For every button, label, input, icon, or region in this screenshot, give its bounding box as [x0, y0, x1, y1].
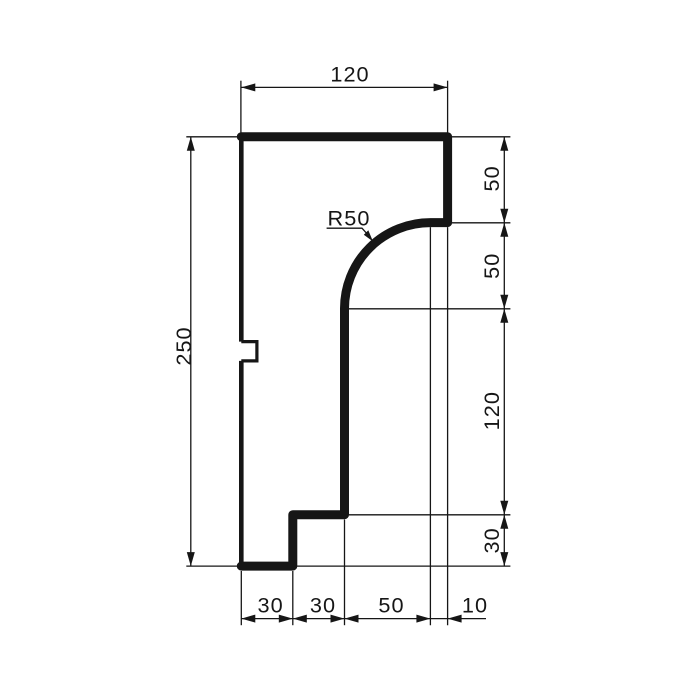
- svg-text:120: 120: [330, 61, 369, 86]
- svg-text:10: 10: [462, 593, 488, 618]
- svg-text:R50: R50: [328, 206, 371, 231]
- svg-text:30: 30: [257, 593, 283, 618]
- svg-text:50: 50: [378, 593, 404, 618]
- svg-text:50: 50: [479, 165, 504, 191]
- svg-text:120: 120: [479, 391, 504, 430]
- svg-text:50: 50: [479, 253, 504, 279]
- svg-text:30: 30: [479, 527, 504, 553]
- svg-text:250: 250: [171, 326, 196, 365]
- svg-text:30: 30: [310, 593, 336, 618]
